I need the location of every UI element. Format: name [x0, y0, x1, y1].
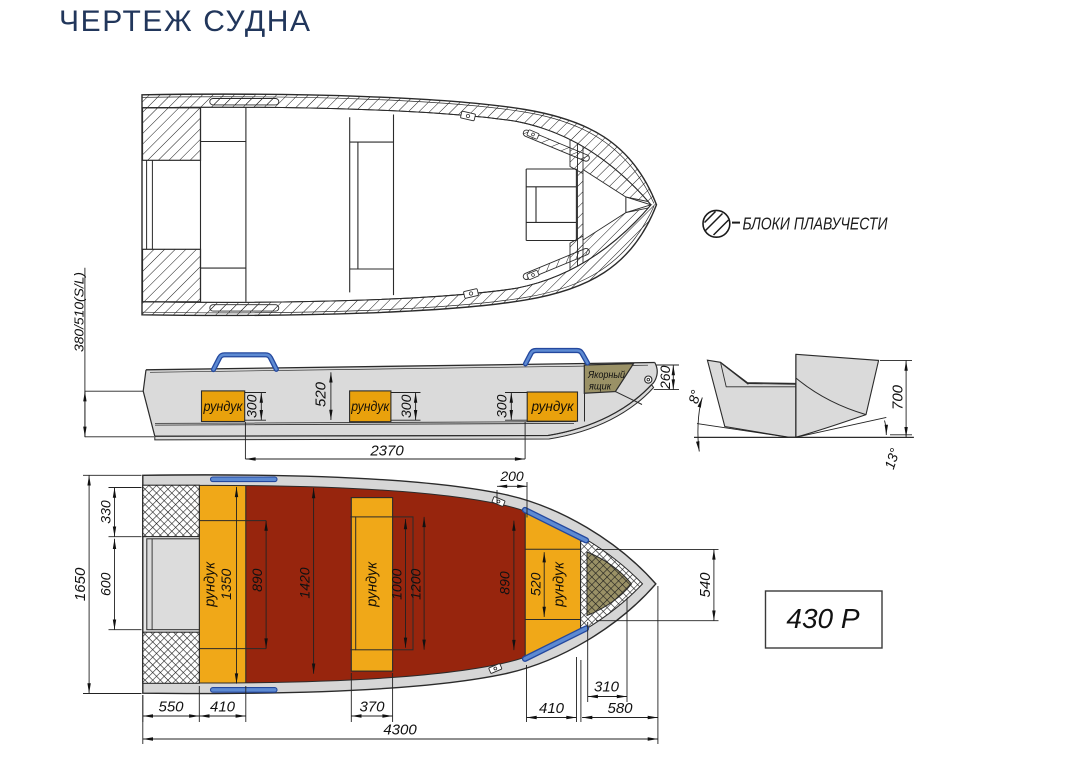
svg-text:540: 540: [697, 572, 714, 598]
svg-text:рундук: рундук: [350, 399, 389, 414]
svg-text:БЛОКИ ПЛАВУЧЕСТИ: БЛОКИ ПЛАВУЧЕСТИ: [743, 213, 888, 233]
svg-text:550: 550: [158, 699, 184, 716]
svg-text:520: 520: [528, 572, 544, 596]
svg-text:520: 520: [313, 381, 330, 407]
svg-text:890: 890: [497, 571, 513, 595]
svg-text:310: 310: [594, 679, 620, 696]
svg-text:рундук: рундук: [203, 399, 244, 414]
svg-text:890: 890: [249, 568, 265, 592]
svg-text:300: 300: [398, 394, 414, 418]
svg-text:330: 330: [98, 500, 114, 524]
svg-text:1650: 1650: [72, 567, 89, 601]
svg-text:2370: 2370: [369, 443, 404, 460]
svg-text:рундук: рундук: [552, 561, 568, 608]
svg-text:300: 300: [244, 394, 260, 418]
svg-text:1000: 1000: [389, 569, 405, 600]
svg-text:1200: 1200: [408, 569, 424, 600]
svg-text:700: 700: [890, 384, 907, 410]
svg-text:410: 410: [210, 699, 236, 716]
svg-text:430 Р: 430 Р: [786, 603, 859, 634]
svg-text:200: 200: [499, 468, 524, 484]
svg-text:380/510(S/L): 380/510(S/L): [72, 272, 87, 352]
svg-text:300: 300: [494, 394, 510, 418]
svg-text:13°: 13°: [881, 446, 903, 471]
svg-text:рундук: рундук: [365, 561, 381, 608]
svg-text:580: 580: [607, 700, 633, 717]
svg-text:рундук: рундук: [530, 399, 574, 414]
svg-text:370: 370: [359, 699, 385, 716]
svg-text:410: 410: [539, 700, 565, 717]
svg-text:600: 600: [98, 572, 114, 596]
svg-text:Якорный: Якорный: [587, 370, 625, 381]
svg-text:1420: 1420: [297, 567, 313, 598]
svg-text:1350: 1350: [218, 569, 234, 600]
svg-text:4300: 4300: [383, 722, 417, 739]
svg-text:ящик: ящик: [588, 382, 612, 393]
svg-text:рундук: рундук: [203, 561, 219, 608]
svg-text:260: 260: [657, 365, 673, 390]
